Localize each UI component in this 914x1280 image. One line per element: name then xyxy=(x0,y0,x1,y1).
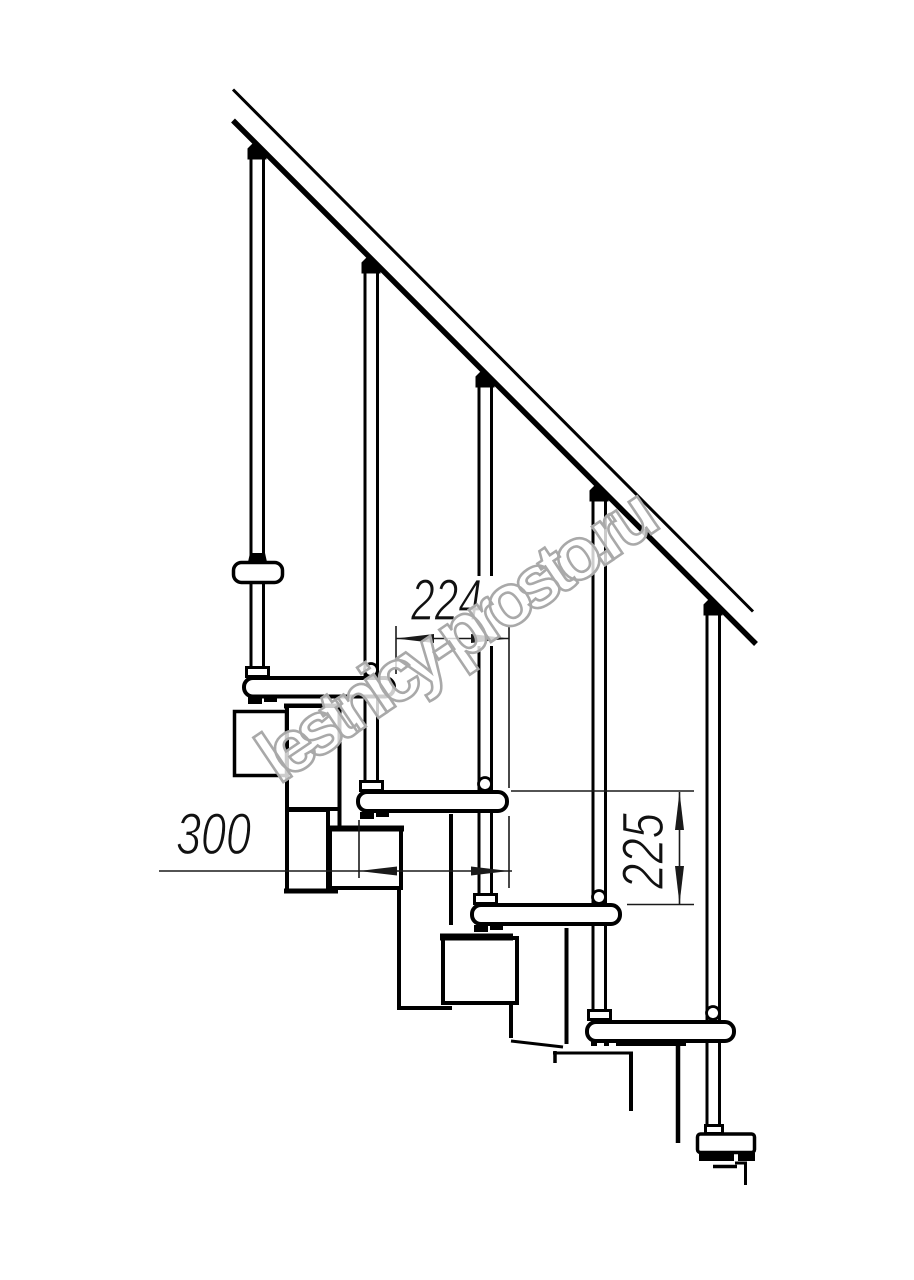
svg-text:300: 300 xyxy=(176,802,251,867)
svg-text:225: 225 xyxy=(611,812,676,889)
